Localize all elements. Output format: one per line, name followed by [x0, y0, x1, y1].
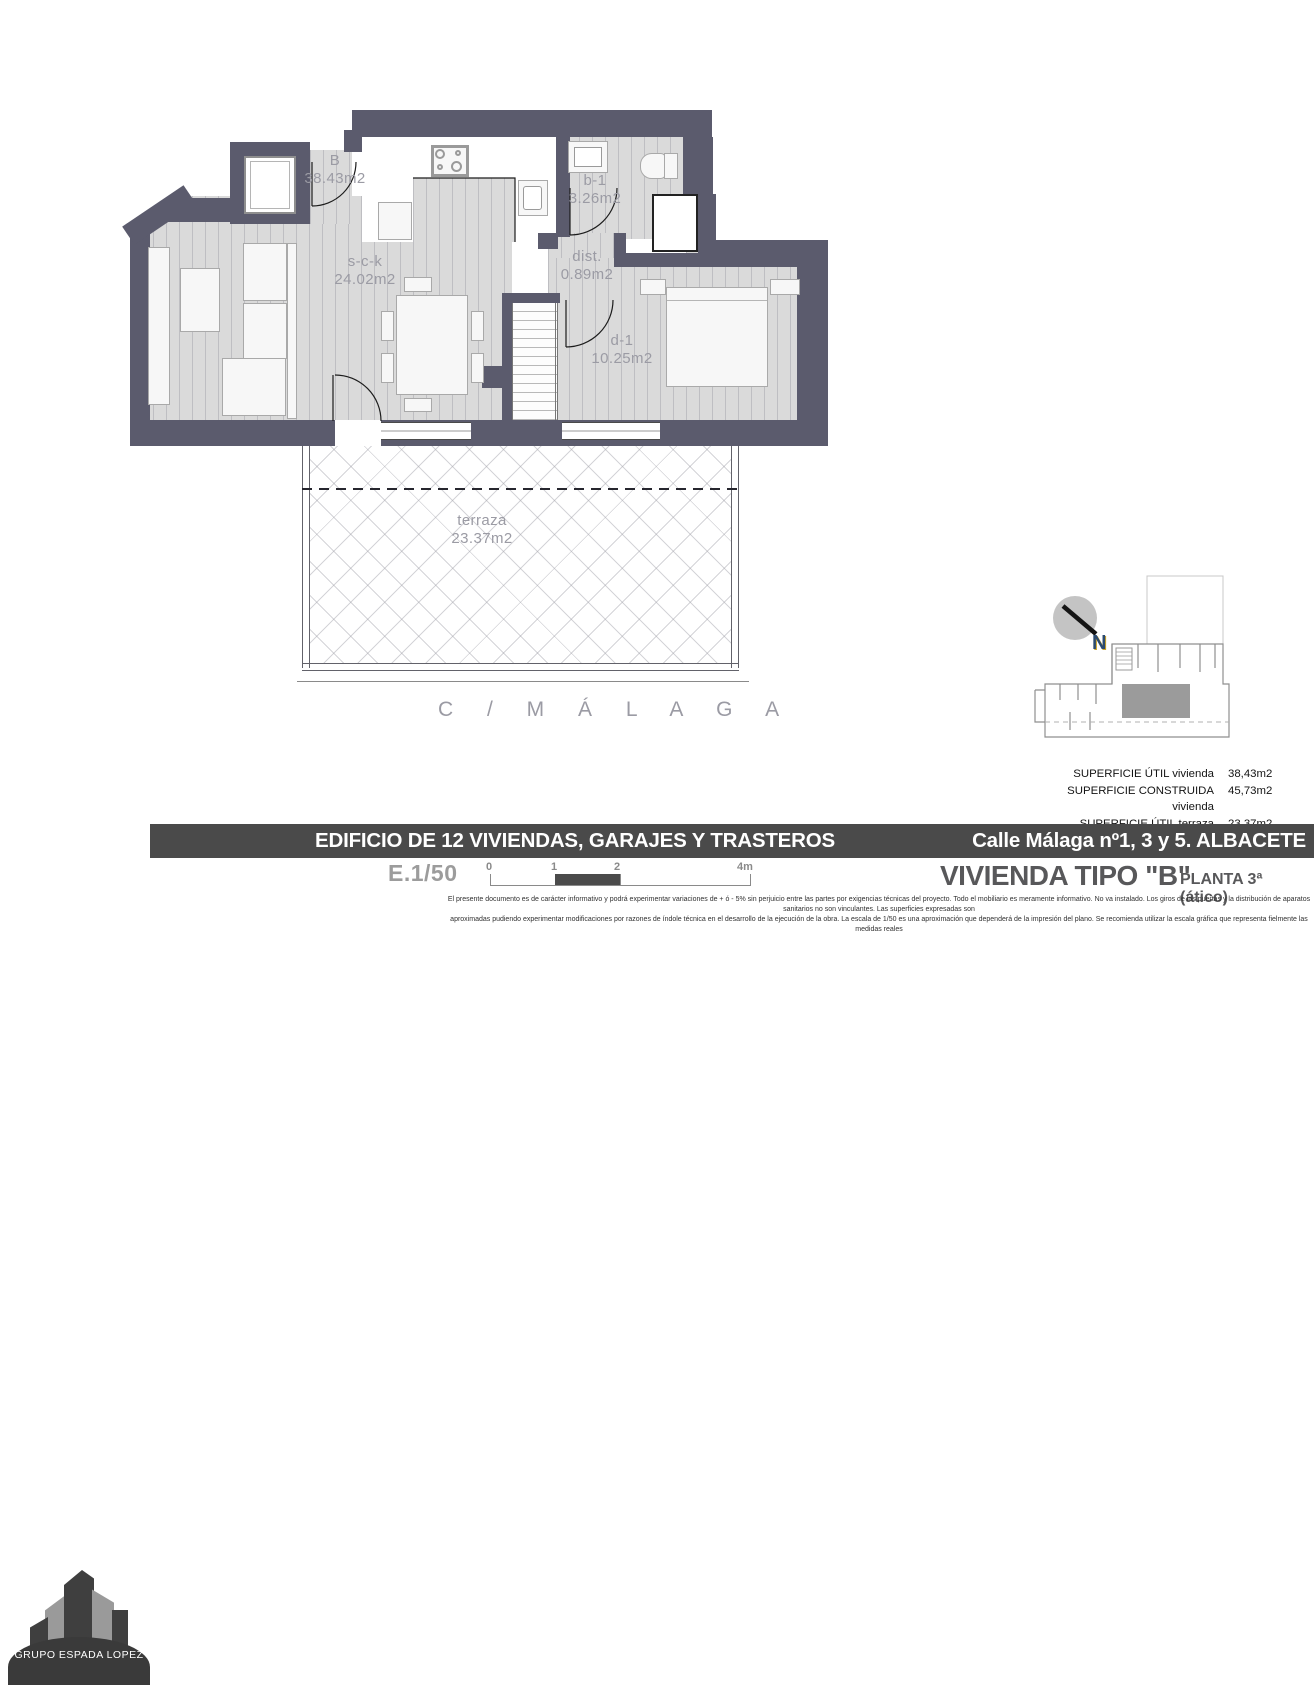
shaft-wall-bottom [230, 214, 310, 224]
logo-company-name: GRUPO ESPADA LOPEZ [8, 1649, 150, 1661]
chair [471, 353, 484, 383]
basin-icon [574, 147, 602, 167]
cabinet-a [243, 243, 287, 301]
burner-icon [455, 150, 461, 156]
terrace-rail [302, 446, 303, 668]
scale-text: E.1/50 [388, 860, 458, 887]
unit-title: VIVIENDA TIPO "B" [940, 860, 1190, 892]
wardrobe [512, 303, 558, 420]
disclaimer-line2: aproximadas pudiendo experimentar modifi… [445, 915, 1313, 935]
scalebar-fill [555, 874, 620, 885]
toilet-tank [664, 153, 678, 179]
scalebar-tick [750, 874, 751, 885]
kitchen-counter [413, 178, 515, 242]
room-area: 10.25m2 [570, 350, 674, 368]
chair [381, 311, 394, 341]
bed-headboard-line [667, 300, 767, 301]
sofa-main [222, 358, 286, 416]
title-band: EDIFICIO DE 12 VIVIENDAS, GARAJES Y TRAS… [150, 824, 1314, 858]
disclaimer-line1: El presente documento es de carácter inf… [445, 895, 1313, 915]
room-label-sck: s-c-k 24.02m2 [310, 253, 420, 289]
wall-entry-step [344, 130, 362, 152]
nightstand-left [640, 279, 666, 295]
street-label: C / M Á L A G A [438, 698, 793, 722]
sofa-side [148, 247, 170, 405]
room-area: 23.37m2 [430, 530, 534, 548]
bath-sink [568, 141, 608, 173]
burner-icon [451, 161, 462, 172]
summary-row: SUPERFICIE CONSTRUIDA vivienda 45,73m2 [1026, 783, 1284, 816]
apartment-name: B [280, 152, 390, 170]
shaft-wall-left [230, 142, 244, 224]
keyplan-stair [1116, 648, 1132, 670]
nightstand-right [770, 279, 800, 295]
wall-topleft [168, 198, 236, 222]
scalebar-baseline [490, 885, 751, 886]
shower-tray [652, 194, 698, 252]
room-area: 3.26m2 [545, 190, 645, 208]
terrace-rail [302, 663, 739, 664]
terrace-hatch [310, 446, 731, 664]
room-name: b-1 [545, 172, 645, 190]
wall-wardrobe-left [502, 293, 512, 420]
burner-icon [435, 149, 445, 159]
room-name: s-c-k [310, 253, 420, 271]
cabinet-strip [287, 243, 297, 419]
window-bedroom [562, 422, 660, 440]
wall-nub [482, 366, 504, 388]
scalebar-tick [490, 874, 491, 885]
summary-value: 45,73m2 [1228, 783, 1284, 816]
room-label-b1: b-1 3.26m2 [545, 172, 645, 208]
project-title: EDIFICIO DE 12 VIVIENDAS, GARAJES Y TRAS… [315, 829, 835, 853]
room-label-d1: d-1 10.25m2 [570, 332, 674, 368]
armchair [180, 268, 220, 332]
project-address: Calle Málaga nº1, 3 y 5. ALBACETE [972, 829, 1306, 853]
kitchen-appliance [378, 202, 412, 240]
chair [471, 311, 484, 341]
window-living [381, 422, 471, 440]
wall-bottom [130, 420, 828, 446]
wall-bath-right [683, 137, 713, 195]
summary-label: SUPERFICIE CONSTRUIDA vivienda [1026, 783, 1214, 816]
room-area: 24.02m2 [310, 271, 420, 289]
wall-hall-left-stub [538, 233, 558, 249]
room-name: dist. [537, 248, 637, 266]
disclaimer: El presente documento es de carácter inf… [445, 895, 1313, 935]
apartment-label: B 38.43m2 [280, 152, 390, 188]
stove [431, 145, 469, 177]
summary-value: 38,43m2 [1228, 766, 1284, 783]
terrace-door-opening [335, 420, 381, 446]
apartment-area: 38.43m2 [280, 170, 390, 188]
room-label-terraza: terraza 23.37m2 [430, 512, 534, 548]
cabinet-b [243, 303, 287, 359]
bed [666, 287, 768, 387]
keyplan-upper-block [1147, 576, 1223, 644]
summary-row: SUPERFICIE ÚTIL vivienda 38,43m2 [1026, 766, 1284, 783]
wall-top [352, 110, 712, 137]
company-logo: GRUPO ESPADA LOPEZ [8, 782, 156, 910]
burner-icon [437, 164, 443, 170]
north-letter: N [1092, 632, 1106, 654]
summary-label: SUPERFICIE ÚTIL vivienda [1026, 766, 1214, 783]
scalebar-num: 2 [614, 861, 620, 873]
terrace-rail [309, 446, 310, 668]
scalebar-num: 4m [737, 861, 753, 873]
key-plan: N N [1030, 572, 1314, 762]
scalebar-num: 0 [486, 861, 492, 873]
dining-table [396, 295, 468, 395]
room-area: 0.89m2 [537, 266, 637, 284]
kitchen-sink [518, 180, 548, 216]
terrace-rail [738, 446, 739, 668]
logo-dome [8, 1637, 150, 1685]
terrace-rail [302, 670, 739, 671]
room-label-dist: dist. 0.89m2 [537, 248, 637, 284]
scalebar-tick [620, 874, 621, 885]
terrace-dashed-line [302, 488, 740, 490]
chair [381, 353, 394, 383]
chair [404, 398, 432, 412]
scalebar-num: 1 [551, 861, 557, 873]
room-name: terraza [430, 512, 534, 530]
street-curb-line [297, 681, 749, 682]
keyplan-unit-highlight [1122, 684, 1190, 718]
wall-right [797, 265, 828, 446]
sink-basin-icon [523, 186, 542, 210]
room-name: d-1 [570, 332, 674, 350]
terrace-rail [731, 446, 732, 668]
wall-bedroom-top [614, 253, 828, 267]
wall-left [130, 228, 150, 424]
